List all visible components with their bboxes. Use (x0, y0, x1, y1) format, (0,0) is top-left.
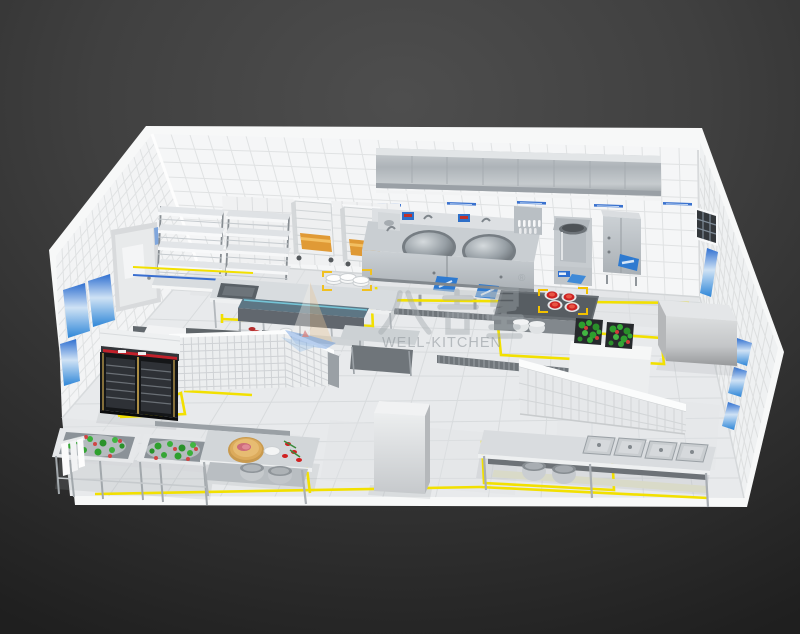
svg-text:®: ® (518, 273, 526, 284)
svg-text:WELL-KITCHEN: WELL-KITCHEN (382, 335, 502, 351)
